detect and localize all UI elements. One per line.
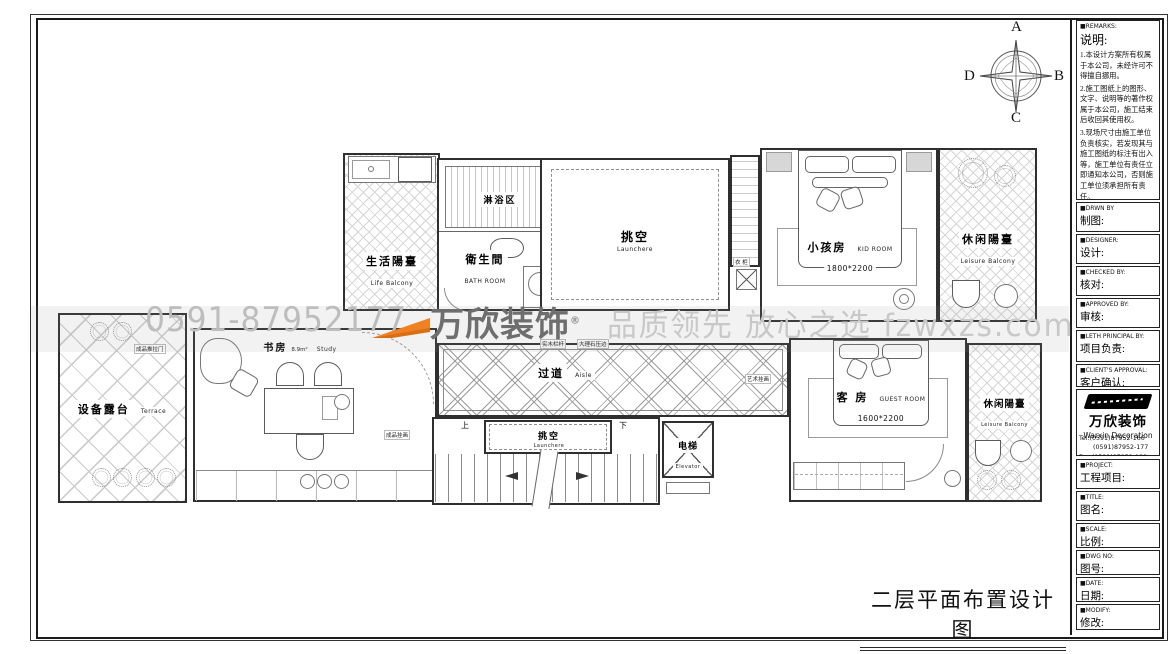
compass-letter-south: C [1011, 110, 1021, 127]
room-label-aisle: 过道 Aisle [520, 362, 610, 382]
scale-label-cn: 比例: [1080, 534, 1156, 548]
floor-drain-icon [944, 470, 961, 487]
remarks-note-3: 3.现场尺寸由施工单位负责核实，若发现其与施工图纸的标注有出入等，施工单位有责任… [1080, 128, 1156, 200]
compass-letter-north: A [1011, 19, 1022, 36]
sheet-title: 二层平面布置设计图 [860, 584, 1066, 651]
room-label-void-top: 挑空 Launchere [580, 228, 690, 253]
stair-direction-arrow-right [576, 472, 589, 480]
titleblock-field-principal: ■LETH PRINCIPAL BY: 项目负责: [1076, 330, 1160, 362]
desk-lamp-icon [334, 394, 350, 410]
designer-label-en: ■DESIGNER: [1080, 237, 1156, 244]
titleblock-field-date: ■DATE: 日期: [1076, 577, 1160, 602]
kid-bed-bolster [812, 177, 888, 188]
plant-icon [977, 470, 997, 490]
drawn-by-label-en: ■DRWN BY [1080, 205, 1156, 212]
terrace-en: Terrace [138, 407, 169, 416]
room-label-bathroom: 衛生間 BATH ROOM [440, 248, 530, 287]
bathroom-en: BATH ROOM [461, 277, 508, 286]
titleblock-remarks: ■REMARKS: 说明: 1.本设计方案所有权属于本公司，未经许可不得擅自挪用… [1076, 20, 1160, 200]
life-balcony-en: Life Balcony [368, 279, 417, 288]
watermark-brand: 万欣装饰® [430, 297, 581, 346]
cabinet-knob-icon [317, 474, 332, 489]
titleblock-field-drawn-by: ■DRWN BY 制图: [1076, 202, 1160, 232]
titleblock-field-approved-by: ■APPROVED BY: 审核: [1076, 298, 1160, 328]
plant-icon [157, 468, 176, 487]
kid-room-dim: 1800*2200 [824, 263, 876, 274]
study-cabinet-row [196, 470, 434, 501]
client-approval-label-cn: 客户确认: [1080, 375, 1156, 387]
designer-label-cn: 设计: [1080, 245, 1156, 260]
dwg-title-label-cn: 图名: [1080, 502, 1156, 517]
room-label-guest: 客 房 GUEST ROOM 1600*2200 [826, 386, 936, 425]
guest-wardrobe [793, 462, 905, 490]
room-label-void-bottom: 挑空 Launchere [504, 424, 594, 449]
checked-by-label-cn: 核对: [1080, 277, 1156, 292]
checked-by-label-en: ■CHECKED BY: [1080, 269, 1156, 276]
guest-room-en: GUEST ROOM [876, 395, 928, 404]
principal-label-cn: 项目负责: [1080, 341, 1156, 356]
kid-room-en: KID ROOM [855, 245, 896, 254]
remarks-label-en: ■REMARKS: [1080, 23, 1156, 30]
balcony-side-table [1010, 440, 1032, 462]
shower-cn: 淋浴区 [480, 192, 519, 207]
room-label-elevator: 电梯 Elevator [662, 434, 714, 472]
watermark-slogan: 品质领先 放心之选 fzwxzs.com [607, 300, 1075, 345]
remarks-note-1: 1.本设计方案所有权属于本公司，未经许可不得擅自挪用。 [1080, 50, 1156, 82]
terrace-cn: 设备露台 [75, 400, 133, 418]
plant-icon [136, 468, 155, 487]
plant-icon [113, 468, 132, 487]
desk-chair-top-2 [314, 362, 342, 386]
sink-drain-icon [368, 166, 374, 172]
room-label-life-balcony: 生活陽臺 Life Balcony [347, 250, 437, 289]
dwg-no-label-en: ■DWG NO: [1080, 553, 1156, 560]
aisle-inner-border [443, 349, 783, 411]
principal-label-en: ■LETH PRINCIPAL BY: [1080, 333, 1156, 340]
titleblock-field-project: ■PROJECT: 工程项目: [1076, 459, 1160, 489]
compass-rose-icon: A B C D [968, 24, 1064, 124]
titleblock-field-client-approval: ■CLIENT'S APPROVAL: 客户确认: [1076, 364, 1160, 387]
compass-graphic [968, 24, 1064, 124]
room-label-kid: 小孩房 KID ROOM 1800*2200 [795, 236, 905, 275]
company-tel-1: Tel:(0591)87952-166 [1079, 434, 1157, 443]
titleblock-field-checked-by: ■CHECKED BY: 核对: [1076, 266, 1160, 296]
plant-icon [958, 158, 988, 188]
approved-by-label-cn: 审核: [1080, 309, 1156, 324]
room-label-terrace: 设备露台 Terrace [64, 398, 180, 418]
leisure-bottom-cn: 休闲陽臺 [980, 395, 1028, 411]
watermark-phone: 0591-87952177 [145, 300, 407, 340]
stair-direction-arrow-left [505, 472, 518, 480]
leisure-bottom-en: Leisure Balcony [978, 421, 1031, 429]
wardrobe-annotation: 衣 柜 [733, 257, 750, 267]
titleblock-field-scale: ■SCALE: 比例: [1076, 523, 1160, 548]
modify-label-cn: 修改: [1080, 615, 1156, 630]
washing-machine [398, 157, 432, 182]
life-balcony-cn: 生活陽臺 [363, 252, 421, 270]
company-name-cn: 万欣装饰 [1080, 410, 1156, 430]
titleblock-field-modify: ■MODIFY: 修改: [1076, 604, 1160, 630]
kid-room-cn: 小孩房 [804, 238, 849, 256]
approved-by-label-en: ■APPROVED BY: [1080, 301, 1156, 308]
void-top-en: Launchere [580, 246, 690, 253]
bathroom-cn: 衛生間 [463, 250, 508, 268]
titleblock-field-title: ■TITLE: 图名: [1076, 491, 1160, 521]
elevator-cn: 电梯 [675, 438, 701, 453]
project-label-cn: 工程项目: [1080, 470, 1156, 485]
elevator-en: Elevator [673, 463, 704, 471]
stair-down-label: 下 [618, 420, 628, 431]
wardrobe-hanger-rail [795, 474, 903, 475]
project-label-en: ■PROJECT: [1080, 462, 1156, 469]
leisure-top-en: Leisure Balcony [958, 257, 1019, 266]
date-label-en: ■DATE: [1080, 580, 1156, 587]
plant-icon [92, 468, 111, 487]
void-top-cn: 挑空 [580, 228, 690, 245]
compass-letter-east: B [1054, 68, 1064, 85]
titleblock-field-designer: ■DESIGNER: 设计: [1076, 234, 1160, 264]
desk-chair-top-1 [276, 362, 304, 386]
aisle-cn: 过道 [535, 364, 567, 382]
remarks-note-2: 2.施工图纸上的图形、文字、说明等的著作权属于本公司，施工结束后收回其使用权。 [1080, 84, 1156, 126]
art-painting-annotation: 艺术挂画 [745, 374, 771, 384]
guest-room-cn: 客 房 [834, 388, 872, 406]
void-bottom-en: Launchere [504, 443, 594, 449]
company-tel-2: (0591)87952-177 [1079, 443, 1157, 452]
cabinet-knob-icon [300, 474, 315, 489]
brand-text: 万欣装饰 [430, 305, 570, 345]
company-contact: Tel:(0591)87952-166 (0591)87952-177 Fax:… [1076, 430, 1160, 456]
room-label-leisure-top: 休闲陽臺 Leisure Balcony [942, 228, 1034, 267]
remarks-label-cn: 说明: [1080, 31, 1156, 48]
guest-room-dim: 1600*2200 [855, 413, 907, 424]
titleblock-field-dwg-no: ■DWG NO: 图号: [1076, 550, 1160, 575]
dwg-title-label-en: ■TITLE: [1080, 494, 1156, 501]
company-fax: Fax:(0591)87952-199 [1079, 453, 1157, 456]
plant-icon [1001, 470, 1021, 490]
scale-label-en: ■SCALE: [1080, 526, 1156, 533]
stair-up-label: 上 [460, 420, 470, 431]
void-bottom-cn: 挑空 [538, 432, 560, 442]
column-box [736, 269, 757, 290]
kid-bed-pillow-2 [852, 156, 896, 173]
drawn-by-label-cn: 制图: [1080, 213, 1156, 228]
nightstand-left [766, 152, 792, 172]
aisle-en: Aisle [572, 371, 595, 380]
modify-label-en: ■MODIFY: [1080, 607, 1156, 614]
brand-swoosh-icon [372, 316, 430, 340]
drawing-sheet: A B C D ■REMARKS: 说明: 1.本设计方案所有权属于本公司，未经… [0, 0, 1172, 654]
room-label-leisure-bottom: 休闲陽臺 Leisure Balcony [967, 392, 1042, 430]
finished-painting-annotation: 成品挂画 [384, 430, 410, 440]
cabinet-knob-icon [334, 474, 349, 489]
nightstand-right [906, 152, 932, 172]
room-label-shower: 淋浴区 [455, 188, 545, 207]
dwg-no-label-cn: 图号: [1080, 561, 1156, 575]
compass-letter-west: D [964, 68, 975, 85]
wardrobe-strip [730, 155, 760, 267]
client-approval-label-en: ■CLIENT'S APPROVAL: [1080, 367, 1156, 374]
company-logo-icon [1084, 394, 1153, 409]
leisure-top-cn: 休闲陽臺 [959, 230, 1017, 248]
plant-icon [994, 165, 1016, 187]
elevator-door [666, 482, 710, 494]
kid-bed-pillow-1 [805, 156, 849, 173]
registered-mark: ® [570, 316, 581, 327]
balcony-chair [975, 440, 1001, 466]
date-label-cn: 日期: [1080, 588, 1156, 602]
